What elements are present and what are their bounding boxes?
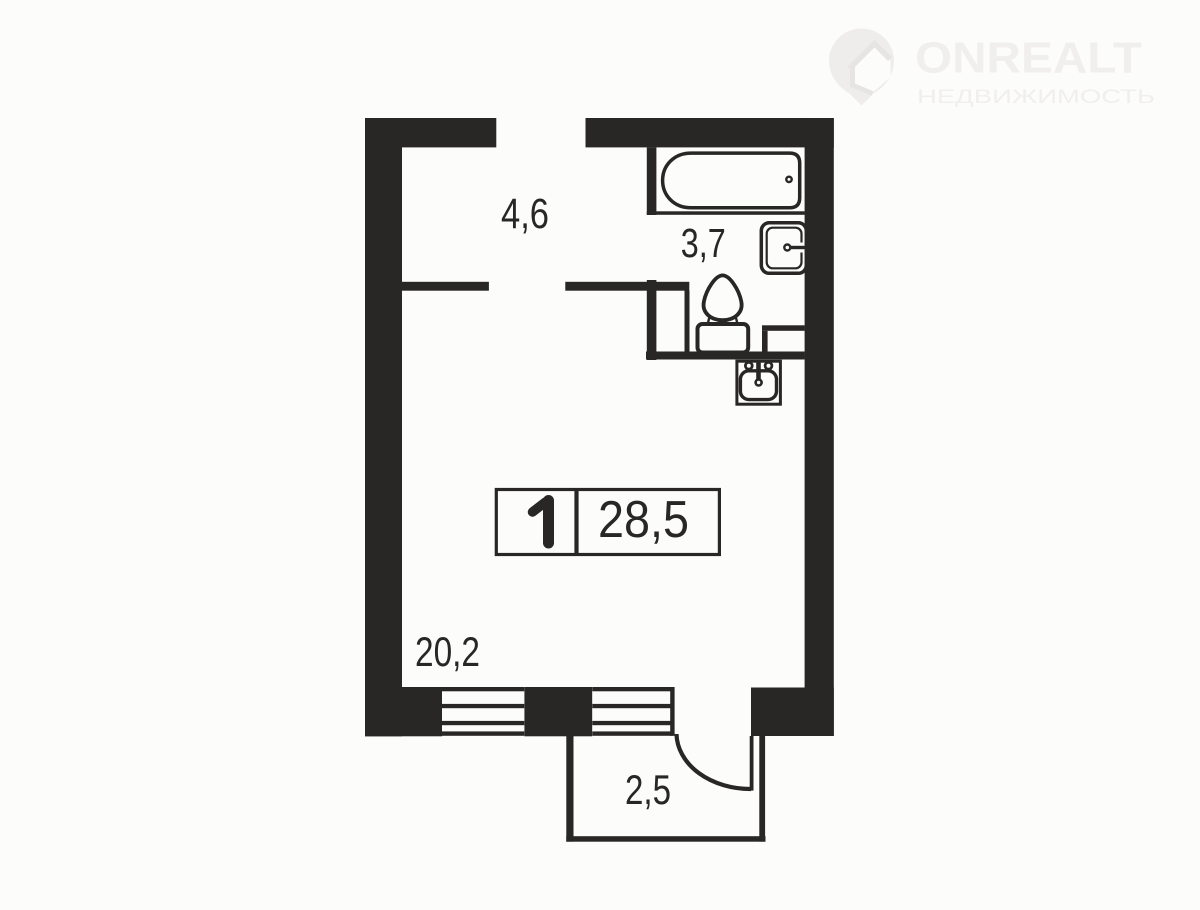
svg-text:20,2: 20,2 [415, 628, 480, 675]
svg-text:28,5: 28,5 [598, 491, 689, 549]
svg-text:2,5: 2,5 [625, 766, 671, 813]
svg-text:4,6: 4,6 [501, 190, 549, 238]
svg-text:ONREALT: ONREALT [915, 34, 1142, 83]
svg-text:НЕДВИЖИМОСТЬ: НЕДВИЖИМОСТЬ [917, 87, 1155, 108]
svg-text:3,7: 3,7 [681, 220, 726, 266]
